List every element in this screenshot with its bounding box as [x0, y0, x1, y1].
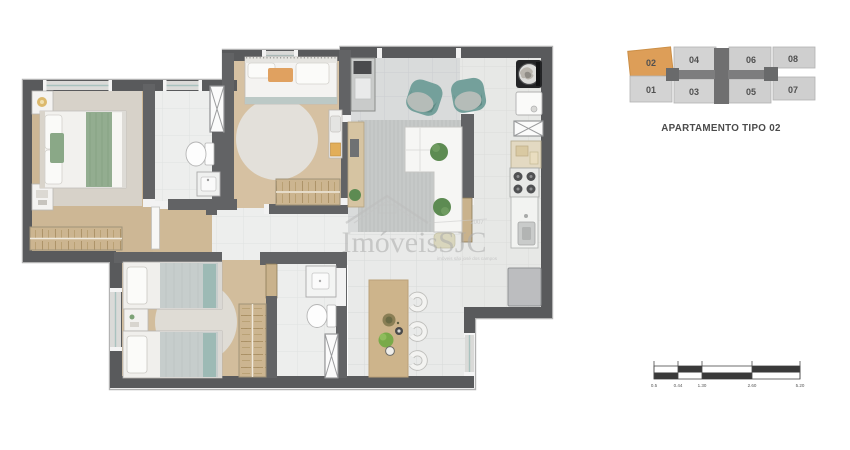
svg-text:imóveis são josé dos campos: imóveis são josé dos campos [437, 256, 498, 261]
svg-text:04: 04 [689, 55, 699, 65]
svg-text:08: 08 [788, 54, 798, 64]
svg-text:2007: 2007 [470, 220, 484, 226]
svg-text:ImóveisSJC: ImóveisSJC [341, 226, 486, 259]
svg-text:03: 03 [689, 87, 699, 97]
svg-text:1.30: 1.30 [698, 383, 707, 388]
svg-text:01: 01 [646, 85, 656, 95]
svg-text:02: 02 [646, 58, 656, 68]
svg-text:2.60: 2.60 [748, 383, 757, 388]
svg-text:06: 06 [746, 55, 756, 65]
svg-text:0.44: 0.44 [674, 383, 683, 388]
svg-text:05: 05 [746, 87, 756, 97]
svg-text:5.20: 5.20 [796, 383, 805, 388]
svg-text:APARTAMENTO TIPO 02: APARTAMENTO TIPO 02 [661, 123, 781, 134]
svg-text:07: 07 [788, 85, 798, 95]
svg-text:0.5: 0.5 [651, 383, 658, 388]
